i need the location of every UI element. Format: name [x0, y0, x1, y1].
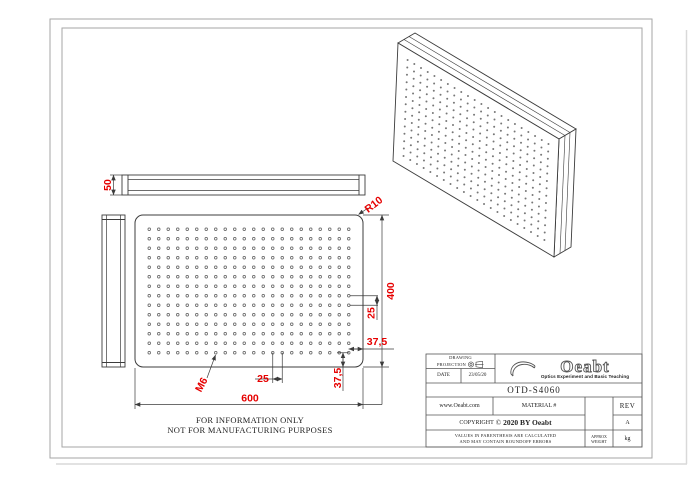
dim-thickness: 50 [102, 179, 114, 191]
projection-cell: DRAWING PROJECTION [427, 355, 494, 368]
weight-unit-cell: kg [614, 431, 641, 446]
copyright-text: 2020 BY Oeabt [503, 418, 551, 427]
material-label: MATERIAL # [522, 403, 557, 409]
rev-label: REV [620, 402, 636, 410]
website: www.Oeabt.com [439, 403, 479, 409]
copyright-cell: COPYRIGHT © 2020 BY Oeabt [427, 416, 584, 429]
part-number: OTD-S4060 [507, 385, 561, 395]
dim-edge-margin-y: 37,5 [332, 368, 344, 389]
dim-corner-radius: R10 [363, 194, 386, 215]
date-value-cell: 23/05/20 [461, 369, 494, 382]
logo-tagline: Optics Experiment and Basic Teaching [541, 374, 629, 379]
dim-edge-margin-x: 37,5 [367, 336, 388, 348]
isometric-view [393, 33, 576, 257]
note-line-1: FOR INFORMATION ONLY [130, 415, 370, 425]
website-cell: www.Oeabt.com [427, 398, 492, 414]
information-notes: FOR INFORMATION ONLY NOT FOR MANUFACTURI… [130, 415, 370, 435]
dim-hole-spacing-x: 25 [257, 373, 269, 385]
logo-cell: Oeabt Optics Experiment and Basic Teachi… [496, 355, 641, 382]
copyright-symbol: © [496, 419, 501, 427]
date-value: 23/05/20 [469, 373, 487, 378]
logo-text: Oeabt [560, 359, 609, 374]
side-view [102, 215, 125, 367]
material-cell: MATERIAL # [494, 398, 584, 414]
copyright-prefix: COPYRIGHT [459, 420, 493, 426]
front-view [122, 175, 365, 195]
part-number-cell: OTD-S4060 [427, 384, 641, 396]
engineering-drawing-sheet: 50 [0, 0, 700, 478]
disclaimer-cell: VALUES IN PARENTHESIS ARE CALCULATED AND… [427, 431, 584, 446]
note-line-2: NOT FOR MANUFACTURING PURPOSES [130, 425, 370, 435]
projection-label-line2: PROJECTION [437, 362, 466, 368]
top-view [135, 215, 363, 367]
approx-weight-cell: APPROX WEIGHT [586, 431, 612, 446]
approx-weight-line2: WEIGHT [591, 439, 607, 444]
drawing-canvas: 50 [0, 0, 700, 478]
disclaimer-line2: AND MAY CONTAIN ROUNDOFF ERRORS [459, 439, 551, 445]
third-angle-projection-icon [468, 361, 484, 368]
date-label: DATE [437, 373, 450, 378]
rev-label-cell: REV [614, 398, 641, 414]
oeabt-logo-icon [508, 359, 538, 379]
dim-height: 400 [385, 282, 397, 300]
rev-value: A [625, 420, 629, 426]
dim-width: 600 [241, 393, 259, 405]
dim-thread: M6 [193, 376, 211, 395]
dim-hole-spacing-y: 25 [365, 307, 377, 319]
rev-value-cell: A [614, 416, 641, 429]
weight-unit: kg [625, 436, 631, 442]
date-label-cell: DATE [427, 369, 460, 382]
